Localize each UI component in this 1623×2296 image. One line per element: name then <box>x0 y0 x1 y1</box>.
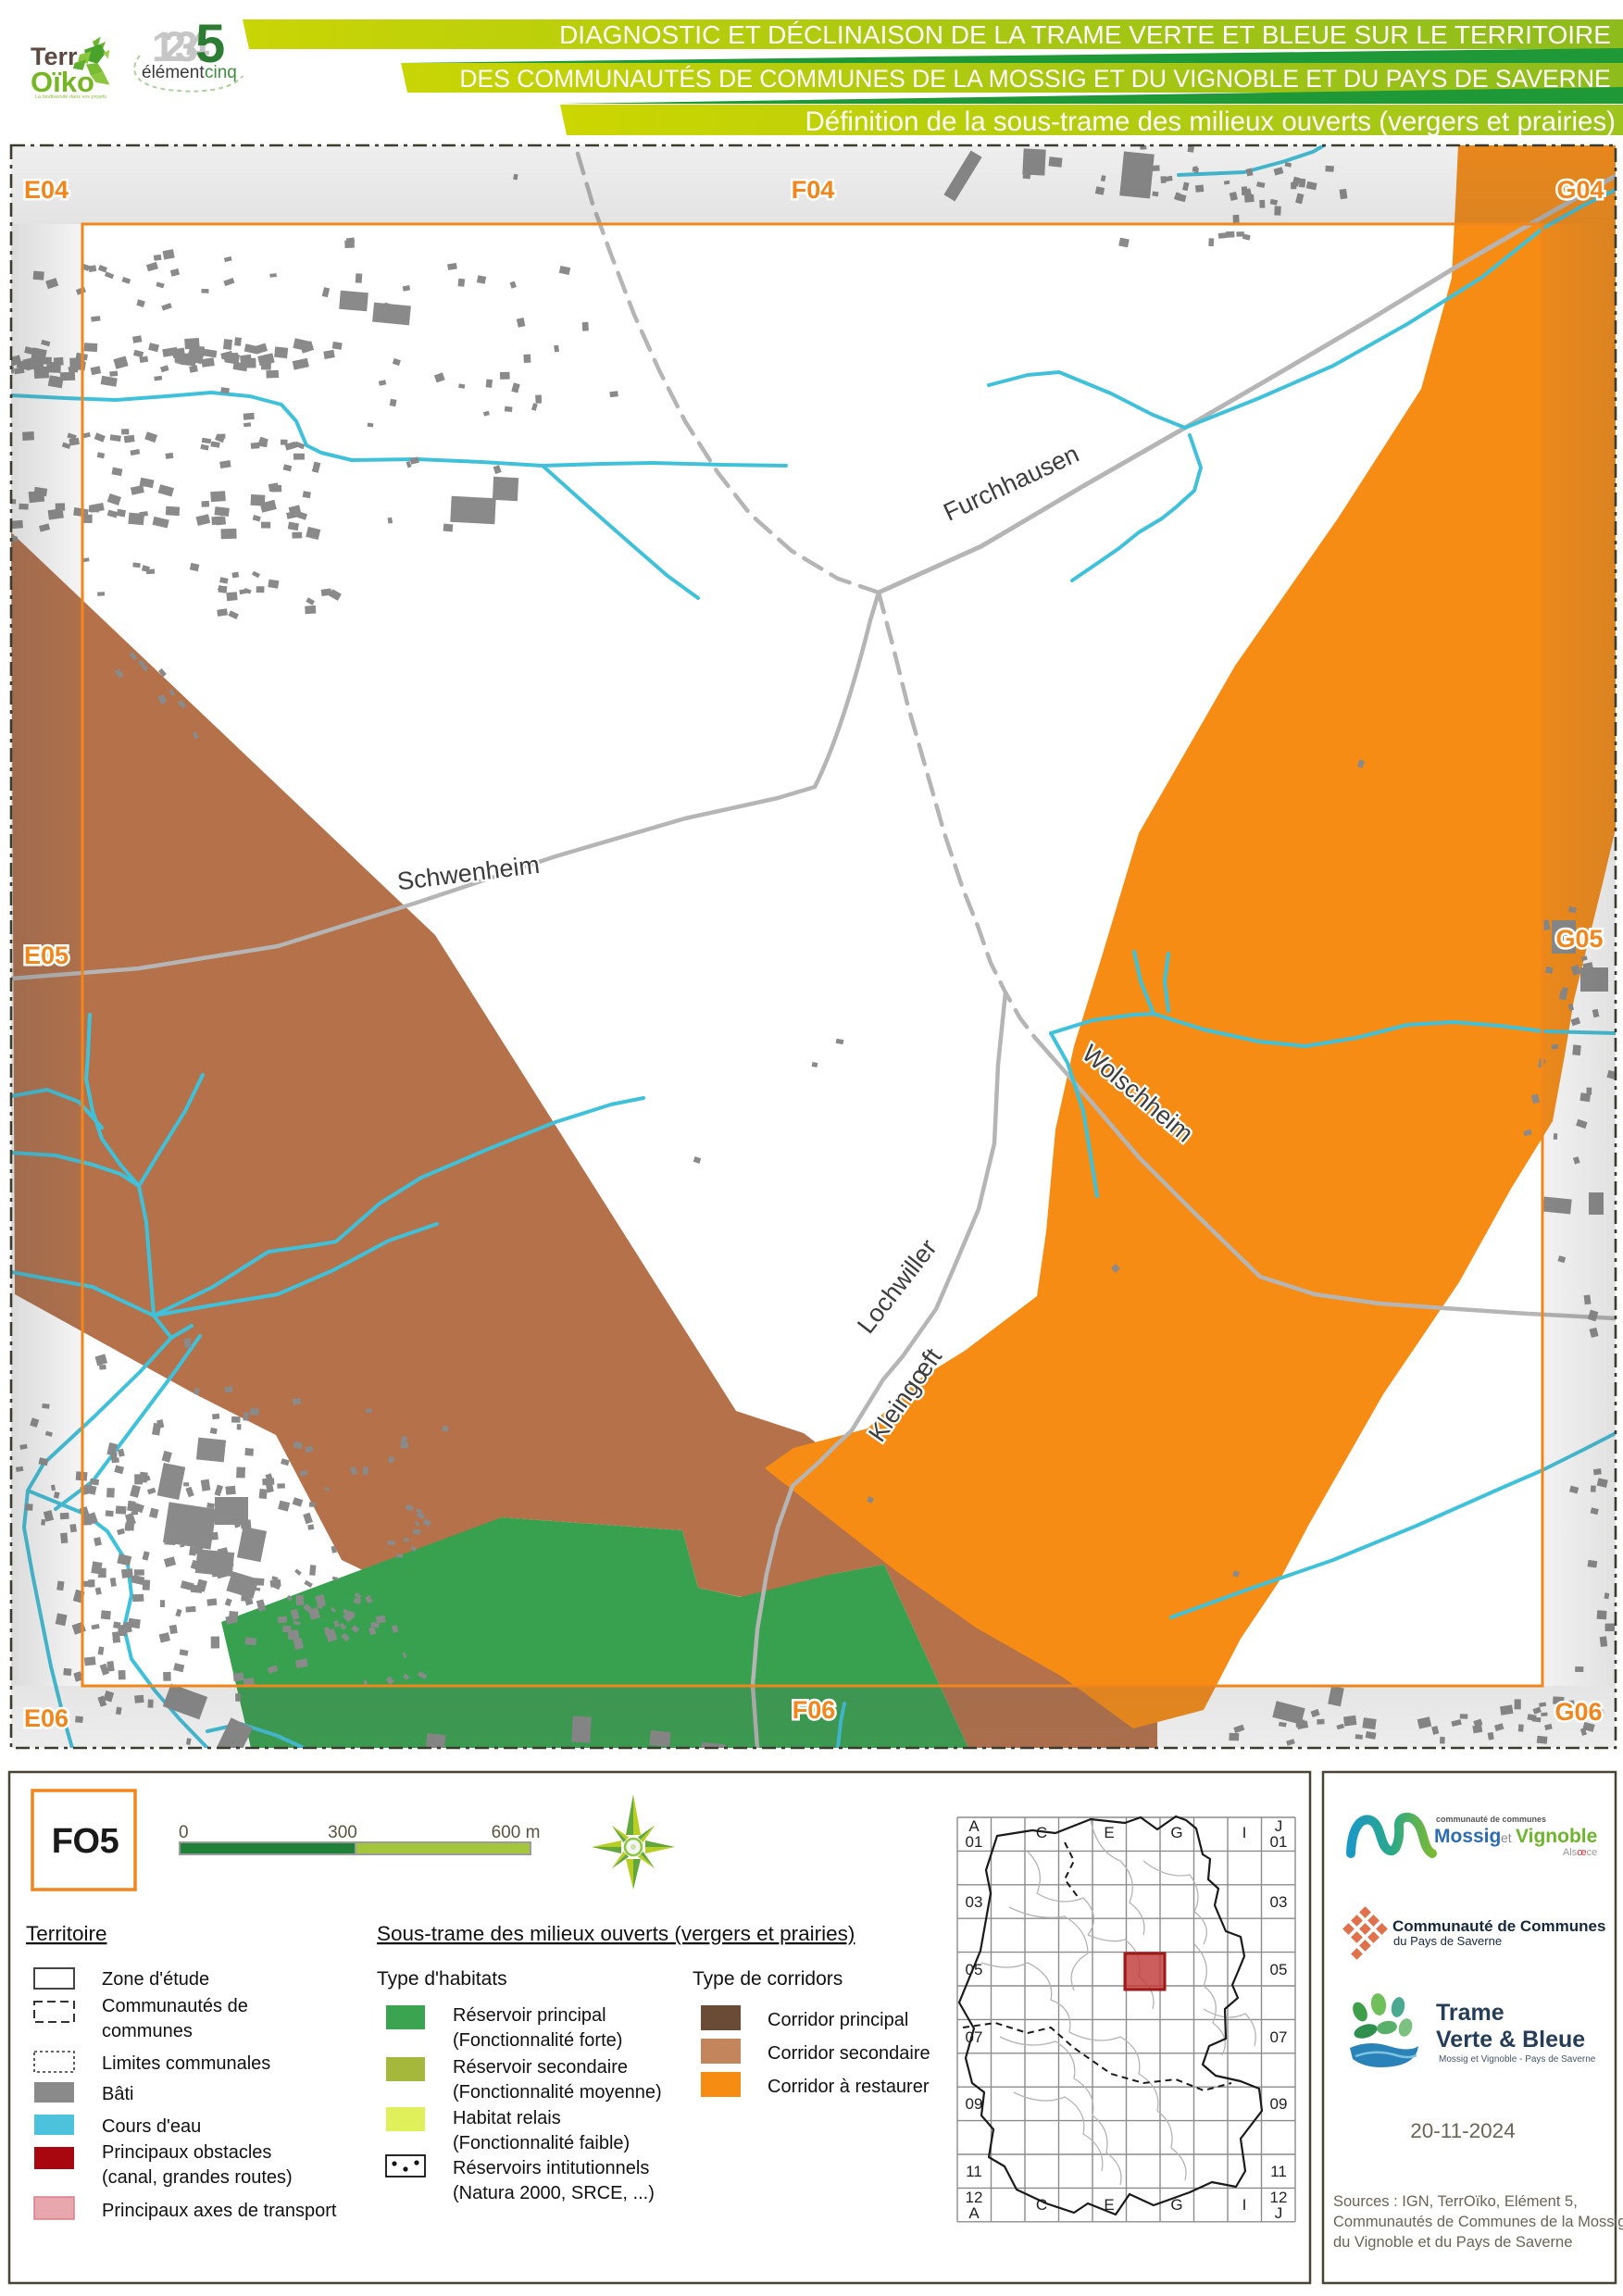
svg-text:Principaux obstacles: Principaux obstacles <box>102 2142 271 2163</box>
svg-text:A: A <box>968 2204 980 2222</box>
svg-text:Vignoble: Vignoble <box>1516 1826 1597 1847</box>
svg-text:G04: G04 <box>1556 176 1604 204</box>
svg-text:Limites communales: Limites communales <box>102 2053 270 2074</box>
svg-text:Habitat relais: Habitat relais <box>453 2108 561 2128</box>
svg-text:09: 09 <box>1270 2095 1288 2113</box>
svg-text:Réservoir secondaire: Réservoir secondaire <box>453 2057 628 2078</box>
svg-text:(Fonctionnalité moyenne): (Fonctionnalité moyenne) <box>453 2082 662 2103</box>
svg-text:communauté de communes: communauté de communes <box>1436 1815 1546 1824</box>
svg-text:09: 09 <box>966 2095 983 2113</box>
svg-text:Sources : IGN, TerrOïko, Eléme: Sources : IGN, TerrOïko, Elément 5, <box>1333 2193 1578 2210</box>
svg-text:Mossig et Vignoble - Pays de S: Mossig et Vignoble - Pays de Saverne <box>1439 2054 1596 2065</box>
svg-text:Zone d'étude: Zone d'étude <box>102 1969 209 1990</box>
svg-text:Sous-trame des milieux ouverts: Sous-trame des milieux ouverts (vergers … <box>377 1922 855 1945</box>
svg-text:E: E <box>1104 1824 1114 1841</box>
svg-text:Principaux axes de transport: Principaux axes de transport <box>102 2201 337 2221</box>
svg-text:cinq: cinq <box>205 63 237 82</box>
svg-text:du Pays de Saverne: du Pays de Saverne <box>1393 1934 1502 1948</box>
svg-text:Bâti: Bâti <box>102 2084 133 2104</box>
svg-text:Mossig: Mossig <box>1434 1826 1501 1847</box>
svg-text:F06: F06 <box>793 1696 836 1724</box>
svg-text:G: G <box>1170 1824 1182 1841</box>
svg-text:07: 07 <box>1270 2028 1288 2046</box>
svg-text:(Natura 2000, SRCE, ...): (Natura 2000, SRCE, ...) <box>453 2183 655 2203</box>
svg-text:05: 05 <box>966 1961 983 1978</box>
svg-text:01: 01 <box>966 1833 983 1851</box>
svg-text:I: I <box>1242 2196 1247 2214</box>
svg-text:Type de corridors: Type de corridors <box>693 1968 843 1990</box>
svg-text:Trame: Trame <box>1436 2000 1504 2026</box>
svg-text:Oïko: Oïko <box>31 66 94 98</box>
svg-text:03: 03 <box>1270 1893 1288 1911</box>
svg-text:I: I <box>1242 1824 1247 1841</box>
svg-text:Communautés de Communes de la: Communautés de Communes de la Mossig et <box>1333 2214 1623 2230</box>
svg-text:11: 11 <box>1270 2163 1287 2180</box>
svg-text:E04: E04 <box>24 176 69 204</box>
svg-text:0: 0 <box>179 1823 189 1842</box>
svg-text:FO5: FO5 <box>52 1822 119 1861</box>
svg-text:Territoire: Territoire <box>26 1922 107 1945</box>
svg-text:E05: E05 <box>24 942 69 969</box>
svg-text:DIAGNOSTIC ET DÉCLINAISON DE L: DIAGNOSTIC ET DÉCLINAISON DE LA TRAME VE… <box>559 20 1611 49</box>
svg-text:du Vignoble et du Pays de Save: du Vignoble et du Pays de Saverne <box>1333 2234 1572 2251</box>
svg-text:01: 01 <box>1270 1833 1288 1851</box>
svg-text:communes: communes <box>102 2021 193 2041</box>
svg-text:Réservoir principal: Réservoir principal <box>453 2005 606 2026</box>
svg-text:Corridor principal: Corridor principal <box>768 2010 908 2030</box>
svg-text:F04: F04 <box>792 176 835 204</box>
svg-text:600 m: 600 m <box>492 1823 541 1842</box>
svg-text:élément: élément <box>142 63 205 82</box>
svg-text:E06: E06 <box>24 1704 69 1732</box>
svg-text:(canal, grandes routes): (canal, grandes routes) <box>102 2167 293 2188</box>
svg-text:Définition de la sous-trame de: Définition de la sous-trame des milieux … <box>805 106 1616 137</box>
svg-text:G05: G05 <box>1555 925 1603 953</box>
svg-text:J: J <box>1275 2204 1283 2222</box>
svg-text:Alsœce: Alsœce <box>1563 1847 1597 1858</box>
svg-text:Type d'habitats: Type d'habitats <box>377 1968 507 1990</box>
svg-text:05: 05 <box>1270 1961 1288 1978</box>
svg-text:Corridor à restaurer: Corridor à restaurer <box>768 2077 930 2097</box>
svg-text:Corridor secondaire: Corridor secondaire <box>768 2043 930 2064</box>
svg-text:La biodiversité dans vos proje: La biodiversité dans vos projets <box>35 94 106 100</box>
svg-text:et: et <box>1501 1830 1512 1845</box>
svg-text:Cours d'eau: Cours d'eau <box>102 2116 201 2137</box>
svg-text:03: 03 <box>966 1893 983 1911</box>
svg-text:300: 300 <box>328 1823 357 1842</box>
svg-text:Verte & Bleue: Verte & Bleue <box>1436 2027 1585 2053</box>
svg-text:DES COMMUNAUTÉS DE COMMUNES DE: DES COMMUNAUTÉS DE COMMUNES DE LA MOSSIG… <box>459 65 1610 93</box>
svg-text:Réservoirs intitutionnels: Réservoirs intitutionnels <box>453 2158 649 2178</box>
svg-text:G06: G06 <box>1554 1698 1602 1726</box>
svg-text:Communauté de Communes: Communauté de Communes <box>1392 1917 1605 1935</box>
svg-text:11: 11 <box>966 2163 982 2180</box>
svg-text:Communautés de: Communautés de <box>102 1996 248 2016</box>
svg-text:(Fonctionnalité faible): (Fonctionnalité faible) <box>453 2133 630 2153</box>
svg-text:20-11-2024: 20-11-2024 <box>1410 2119 1515 2142</box>
svg-text:(Fonctionnalité forte): (Fonctionnalité forte) <box>453 2030 622 2051</box>
